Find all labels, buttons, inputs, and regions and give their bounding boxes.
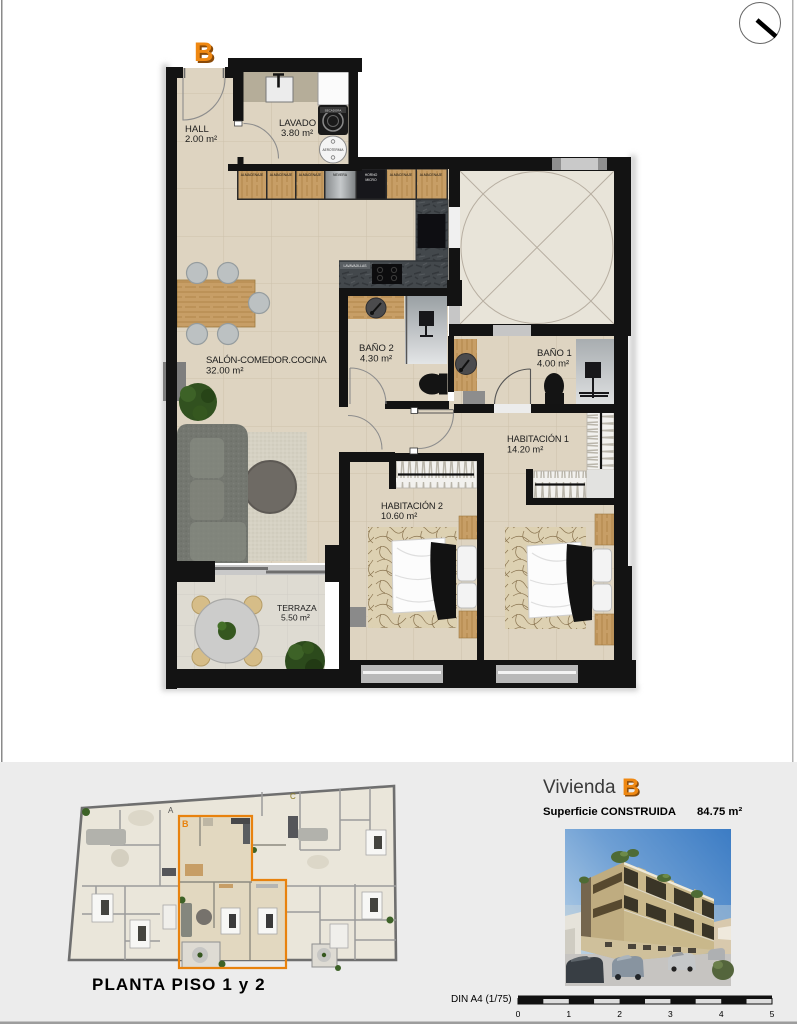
svg-text:MICRO: MICRO <box>365 178 377 182</box>
svg-text:ALMACENAJE: ALMACENAJE <box>390 173 413 177</box>
svg-text:ALMACENAJE: ALMACENAJE <box>299 173 322 177</box>
svg-text:DIN A4 (1/75): DIN A4 (1/75) <box>451 994 512 1005</box>
svg-text:32.00 m²: 32.00 m² <box>206 366 244 377</box>
svg-text:2.00 m²: 2.00 m² <box>185 134 217 145</box>
svg-text:14.20 m²: 14.20 m² <box>507 445 543 455</box>
svg-text:BAÑO 1: BAÑO 1 <box>537 348 572 359</box>
svg-text:C: C <box>290 792 296 801</box>
svg-text:B: B <box>194 37 214 67</box>
svg-text:84.75 m²: 84.75 m² <box>697 806 742 818</box>
svg-text:10.60 m²: 10.60 m² <box>381 511 417 521</box>
svg-text:PLANTA PISO 1 y 2: PLANTA PISO 1 y 2 <box>92 975 266 994</box>
svg-text:B: B <box>622 774 639 801</box>
svg-text:ALMACENAJE: ALMACENAJE <box>241 173 264 177</box>
svg-text:4.30 m²: 4.30 m² <box>360 354 392 365</box>
svg-text:BAÑO 2: BAÑO 2 <box>359 343 394 354</box>
svg-text:Superficie CONSTRUIDA: Superficie CONSTRUIDA <box>543 806 676 818</box>
svg-text:Vivienda: Vivienda <box>543 777 616 798</box>
svg-text:0: 0 <box>516 1009 521 1019</box>
svg-text:3.80 m²: 3.80 m² <box>281 128 313 139</box>
svg-text:SECADORA: SECADORA <box>325 109 342 113</box>
svg-text:5.50 m²: 5.50 m² <box>281 613 310 623</box>
svg-text:B: B <box>182 819 189 829</box>
svg-text:ALMACENAJE: ALMACENAJE <box>270 173 293 177</box>
svg-text:LAVAVAJILLAS: LAVAVAJILLAS <box>343 264 367 268</box>
svg-text:3: 3 <box>668 1009 673 1019</box>
svg-text:4: 4 <box>719 1009 724 1019</box>
svg-text:SALÓN-COMEDOR.COCINA: SALÓN-COMEDOR.COCINA <box>206 355 327 366</box>
svg-text:HABITACIÓN 2: HABITACIÓN 2 <box>381 501 443 511</box>
svg-text:1: 1 <box>566 1009 571 1019</box>
svg-text:NEVERA: NEVERA <box>333 173 348 177</box>
svg-text:A: A <box>168 806 174 815</box>
svg-text:AEROTERMIA: AEROTERMIA <box>322 148 344 152</box>
svg-text:TERRAZA: TERRAZA <box>277 603 317 613</box>
svg-text:2: 2 <box>617 1009 622 1019</box>
svg-text:HABITACIÓN 1: HABITACIÓN 1 <box>507 434 569 444</box>
svg-text:5: 5 <box>770 1009 775 1019</box>
svg-text:HORNO: HORNO <box>365 173 378 177</box>
svg-text:ALMACENAJE: ALMACENAJE <box>420 173 443 177</box>
svg-text:4.00 m²: 4.00 m² <box>537 359 569 370</box>
